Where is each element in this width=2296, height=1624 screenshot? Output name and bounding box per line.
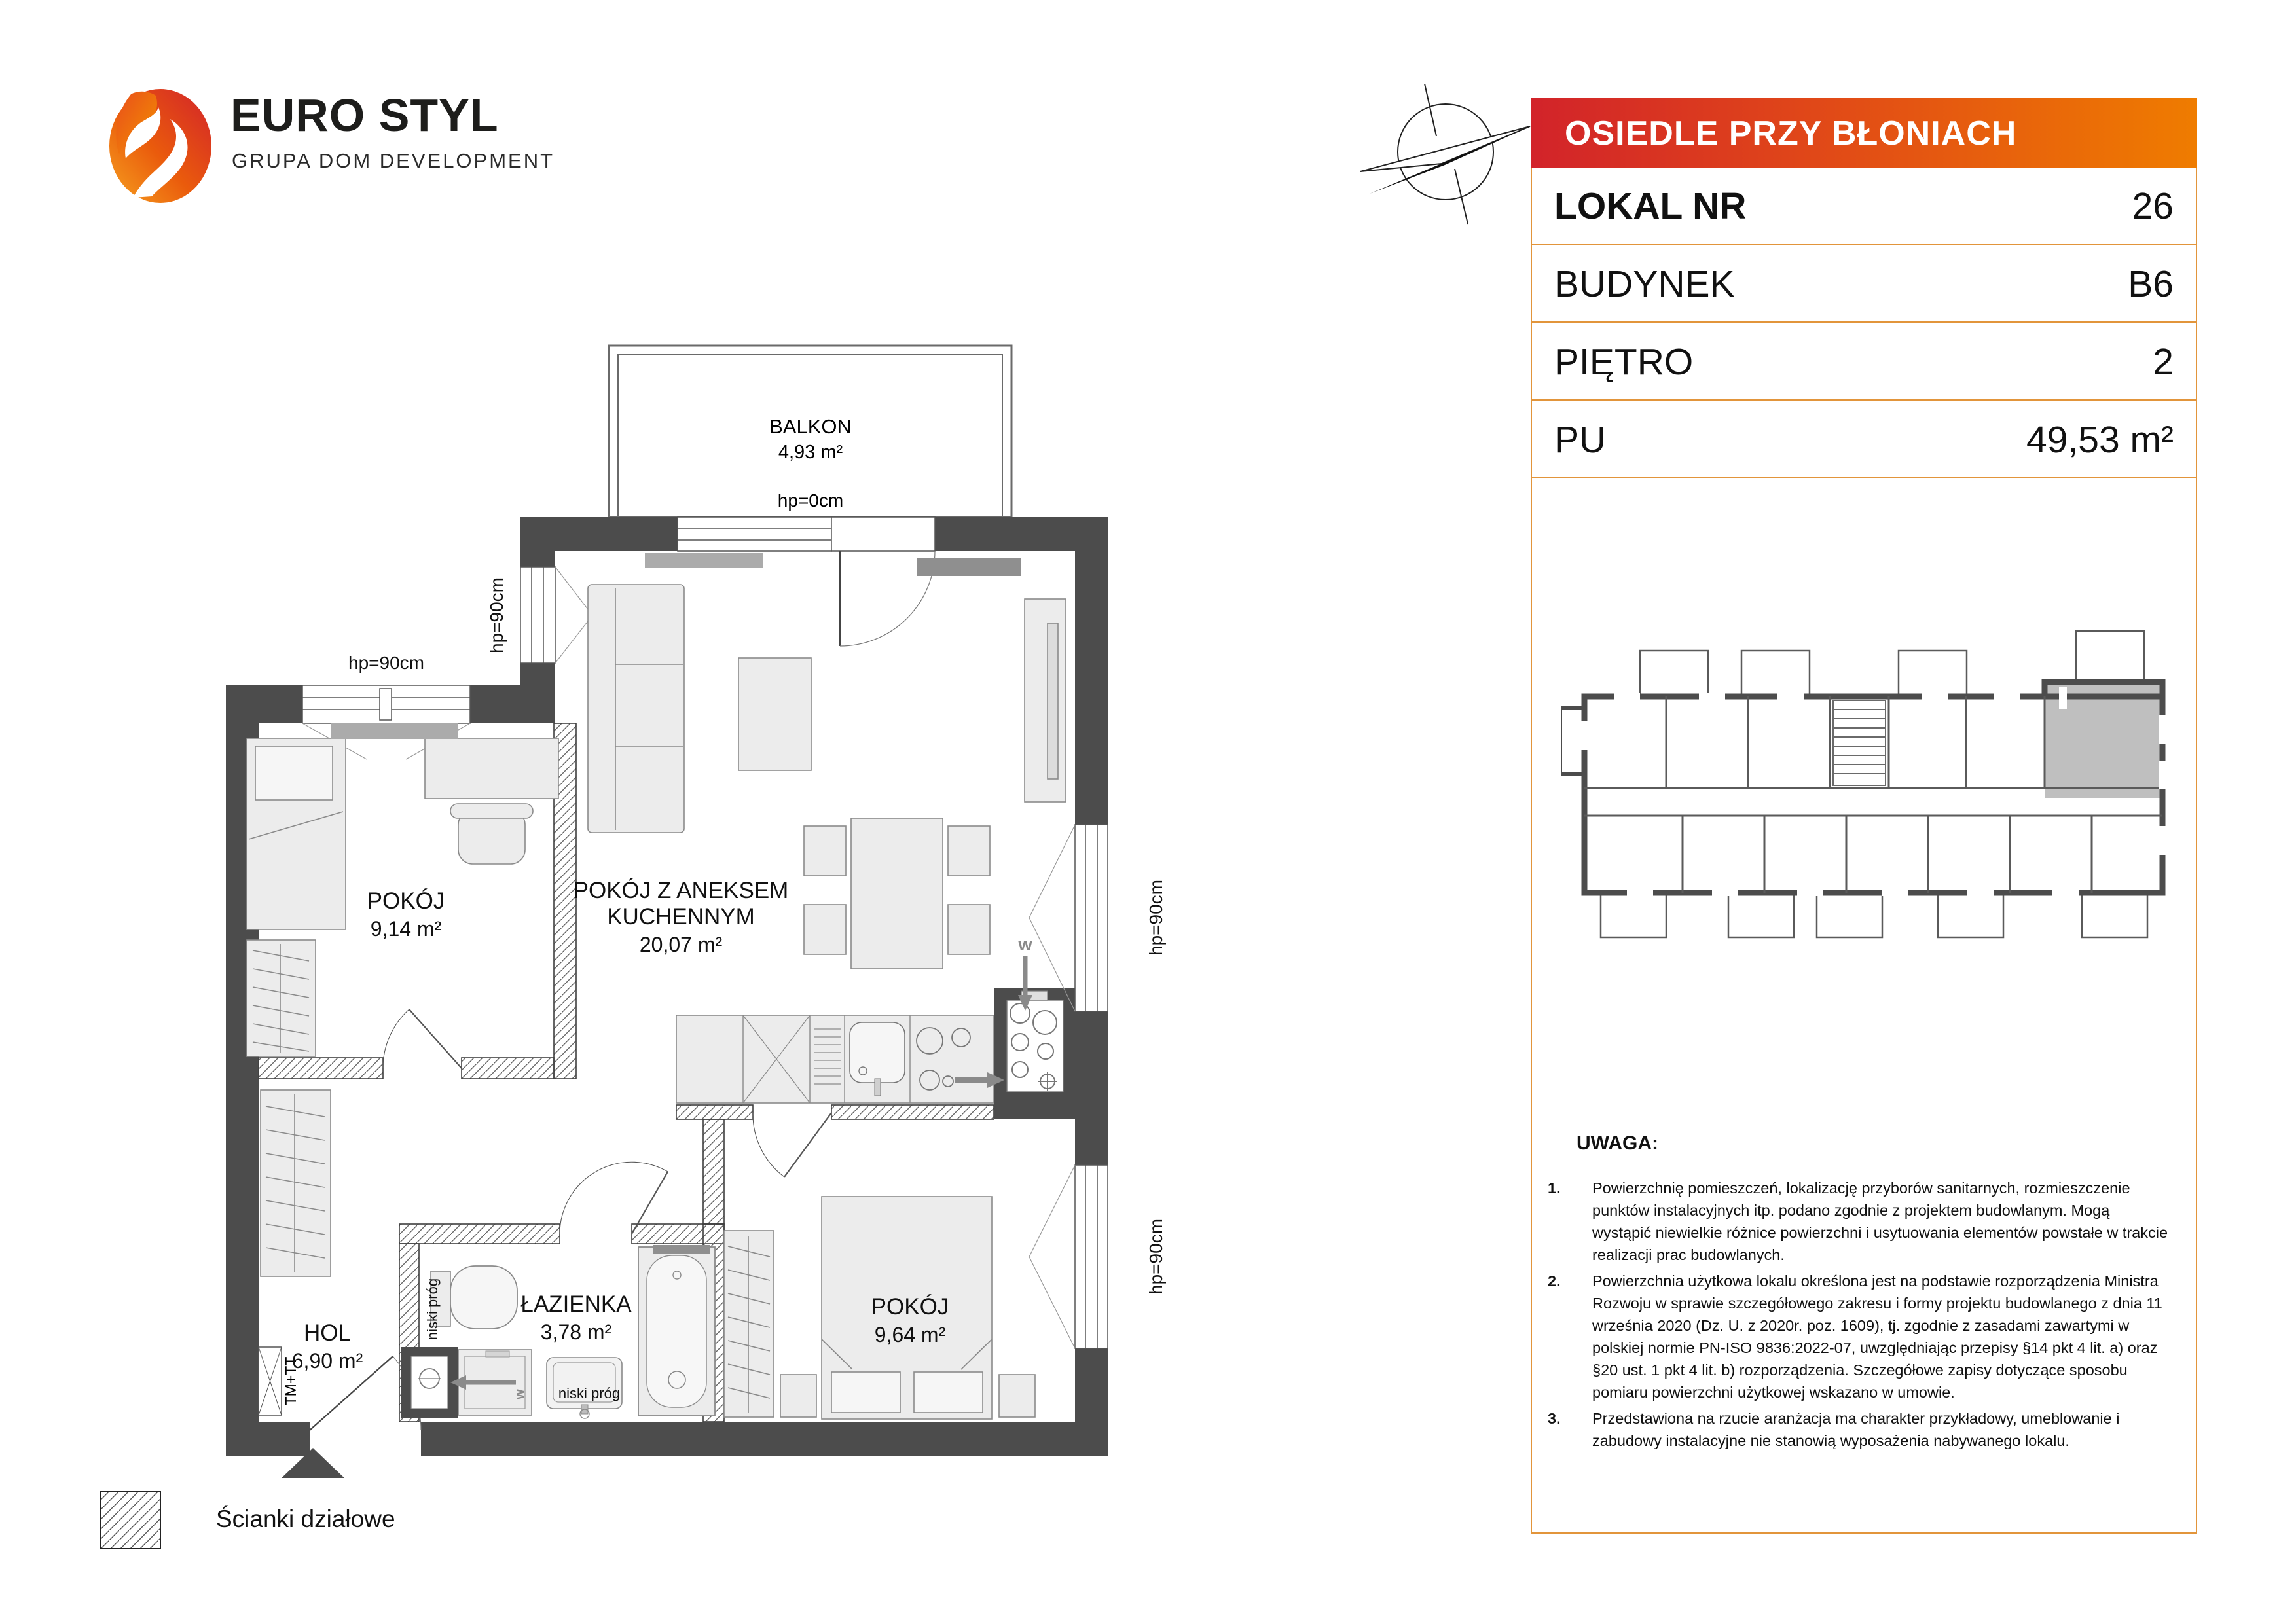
notes-section: UWAGA: 1. Powierzchnię pomieszczeń, loka…	[1548, 1132, 2170, 1456]
notes-heading: UWAGA:	[1576, 1132, 2170, 1155]
note-number: 3.	[1548, 1407, 1561, 1430]
kitchen	[676, 1015, 1004, 1103]
balcony-name: BALKON	[769, 415, 852, 438]
note-number: 1.	[1548, 1177, 1561, 1199]
bath-area: 3,78 m²	[541, 1320, 612, 1344]
hp-label-bedroom: hp=90cm	[1146, 1219, 1166, 1295]
window-balcony-door	[678, 517, 935, 646]
row-value: 49,53 m²	[2026, 418, 2174, 461]
row-label: PU	[1554, 418, 1606, 461]
project-header: OSIEDLE PRZY BŁONIACH	[1531, 98, 2197, 168]
eurostyl-flame-icon	[97, 81, 225, 209]
flat-card-page: EURO STYL GRUPA DOM DEVELOPMENT OSIEDLE …	[0, 0, 2296, 1624]
row-value: 26	[2132, 185, 2174, 228]
row-label: LOKAL NR	[1554, 185, 1746, 228]
row-value: 2	[2153, 340, 2174, 384]
room2-name: POKÓJ	[871, 1294, 949, 1320]
wardrobe-bedroom	[724, 1231, 774, 1417]
installation-shaft	[1007, 991, 1063, 1092]
balcony-area: 4,93 m²	[778, 442, 843, 463]
legend-hatch-icon	[100, 1491, 162, 1550]
bathtub	[638, 1245, 715, 1416]
hol-name: HOL	[304, 1320, 351, 1346]
mini-staircase	[1833, 700, 1886, 785]
note-text: Przedstawiona na rzucie aranżacja ma cha…	[1592, 1410, 2119, 1449]
hp-label-room1: hp=90cm	[348, 653, 424, 673]
hp-label-living-left: hp=90cm	[486, 577, 507, 653]
room1-name: POKÓJ	[367, 888, 445, 914]
note-item: 3. Przedstawiona na rzucie aranżacja ma …	[1548, 1407, 2170, 1452]
hall-wardrobe	[261, 1090, 331, 1276]
nightstand	[999, 1375, 1035, 1417]
row-label: PIĘTRO	[1554, 340, 1693, 384]
radiator	[645, 553, 763, 568]
mini-balconies-bottom	[1601, 893, 2147, 937]
living-name-2: KUCHENNYM	[607, 904, 755, 929]
kitchen-sink	[850, 1022, 905, 1083]
unit-info-panel: OSIEDLE PRZY BŁONIACH LOKAL NR 26 BUDYNE…	[1531, 98, 2197, 1534]
niski-prog-horizontal: niski próg	[558, 1385, 620, 1401]
desk	[425, 738, 558, 799]
north-compass-icon	[1336, 52, 1558, 249]
window-living-left	[520, 567, 592, 663]
note-number: 2.	[1548, 1270, 1561, 1292]
building-floor-mini-plan	[1561, 617, 2183, 957]
nightstand	[780, 1375, 816, 1417]
note-item: 1. Powierzchnię pomieszczeń, lokalizację…	[1548, 1177, 2170, 1266]
sofa	[588, 585, 684, 833]
room2-area: 9,64 m²	[875, 1323, 946, 1346]
logo-subtitle: GRUPA DOM DEVELOPMENT	[232, 149, 555, 173]
radiator	[331, 723, 458, 739]
dining-set	[804, 818, 990, 969]
hp-label-living-right: hp=90cm	[1146, 880, 1166, 956]
row-pu: PU 49,53 m²	[1532, 402, 2196, 478]
legend-label: Ścianki działowe	[216, 1506, 395, 1533]
row-budynek: BUDYNEK B6	[1532, 246, 2196, 323]
wardrobe-room1	[247, 940, 316, 1056]
living-area: 20,07 m²	[640, 933, 723, 956]
row-label: BUDYNEK	[1554, 262, 1735, 306]
tv-unit	[1025, 599, 1066, 802]
wall-accent	[917, 558, 1021, 576]
note-item: 2. Powierzchnia użytkowa lokalu określon…	[1548, 1270, 2170, 1403]
hol-area: 6,90 m²	[292, 1349, 363, 1373]
row-value: B6	[2128, 262, 2174, 306]
apartment-floor-plan: BALKON 4,93 m² hp=0cm	[223, 321, 1185, 1499]
toilet	[450, 1266, 517, 1329]
logo-title: EURO STYL	[230, 89, 499, 141]
note-text: Powierzchnia użytkowa lokalu określona j…	[1592, 1272, 2162, 1401]
row-pietro: PIĘTRO 2	[1532, 324, 2196, 401]
project-name: OSIEDLE PRZY BŁONIACH	[1565, 114, 2016, 153]
vent-w-label: w	[1017, 935, 1032, 954]
niski-prog-vertical: niski próg	[424, 1278, 441, 1340]
bath-name: ŁAZIENKA	[520, 1291, 632, 1317]
row-lokal-nr: LOKAL NR 26	[1532, 168, 2196, 245]
window-living-right	[1029, 825, 1108, 1011]
svg-text:w: w	[513, 1389, 527, 1400]
note-text: Powierzchnię pomieszczeń, lokalizację pr…	[1592, 1180, 2168, 1263]
room1-area: 9,14 m²	[371, 917, 442, 941]
balcony-hp-label: hp=0cm	[778, 490, 843, 511]
window-bedroom-right	[1029, 1165, 1108, 1348]
coffee-table	[738, 658, 811, 770]
living-name-1: POKÓJ Z ANEKSEM	[574, 878, 789, 903]
balcony: BALKON 4,93 m² hp=0cm	[609, 346, 1011, 517]
